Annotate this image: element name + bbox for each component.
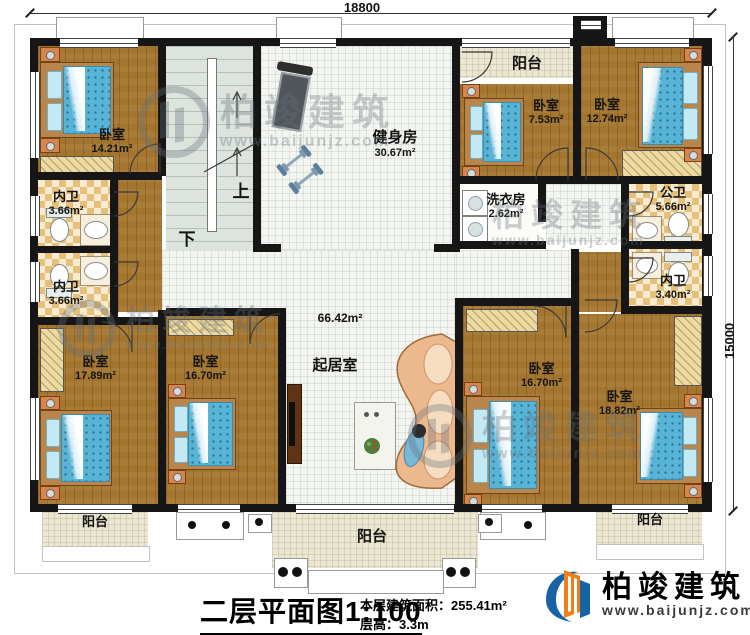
room-label-bedroom-tm: 卧室 7.53m² <box>511 99 581 126</box>
room-name: 公卫 <box>660 185 686 200</box>
nightstand <box>168 384 186 398</box>
height-value: 3.3m <box>399 617 429 632</box>
floor-plan-page: 18800 15000 <box>0 0 750 635</box>
tv <box>289 402 295 446</box>
window <box>30 72 40 158</box>
window <box>280 38 336 48</box>
room-area: 16.70m² <box>158 370 253 382</box>
room-label-bedroom-br1: 卧室 16.70m² <box>494 362 589 389</box>
brand-name: 柏竣建筑 <box>602 573 750 603</box>
sliding-door <box>296 504 454 514</box>
window-eave <box>612 17 694 40</box>
balcony-step <box>596 544 704 560</box>
column <box>292 567 302 577</box>
wall <box>166 308 286 316</box>
room-name: 阳台 <box>637 512 663 527</box>
bed <box>466 396 540 494</box>
room-area: 30.67m² <box>345 147 445 159</box>
table-item <box>374 412 379 417</box>
room-area: 16.70m² <box>494 377 589 389</box>
washing-machine <box>462 216 488 242</box>
stairs-up-label: 上 <box>228 182 254 201</box>
room-label-balcony-bc: 阳台 <box>343 529 401 546</box>
logo-window-slit <box>568 576 571 612</box>
toilet <box>664 252 692 262</box>
room-area: 12.74m² <box>572 113 642 125</box>
room-label-bath-r1: 公卫 5.66m² <box>642 186 704 213</box>
wall <box>253 244 281 252</box>
floor-hall-right <box>546 184 623 243</box>
window-eave <box>56 17 144 40</box>
wall <box>158 46 166 176</box>
wall <box>455 298 463 504</box>
sink <box>84 262 108 280</box>
room-area: 18.82m² <box>572 405 667 417</box>
floor-vestibule <box>118 180 162 312</box>
plan-area-line: 本层建筑面积：255.41m² <box>360 597 507 616</box>
stairs-up-text: 上 <box>233 182 250 201</box>
window <box>703 256 713 296</box>
floor-bedroom-br2-entry <box>579 252 623 312</box>
room-label-bath-r2: 内卫 3.40m² <box>642 274 704 301</box>
brand-website: www.baijunjz.com <box>602 603 750 618</box>
toilet-bowl <box>50 218 69 242</box>
room-area: 3.40m² <box>642 289 704 301</box>
room-name: 卧室 <box>533 98 559 113</box>
room-name: 洗衣房 <box>486 192 525 207</box>
closet <box>466 309 538 332</box>
room-area: 2.62m² <box>468 208 544 220</box>
room-name: 内卫 <box>53 189 79 204</box>
nightstand <box>40 138 60 153</box>
nightstand <box>684 394 702 408</box>
room-label-bedroom-tr: 卧室 12.74m² <box>572 98 642 125</box>
room-name: 内卫 <box>660 273 686 288</box>
dimension-top-value: 18800 <box>330 0 394 15</box>
wall <box>452 241 546 249</box>
window <box>703 66 713 154</box>
brand-logo: 柏竣建筑 www.baijunjz.com <box>540 566 750 626</box>
room-area: 66.42m² <box>318 311 363 325</box>
window-eave <box>276 17 342 40</box>
room-area: 17.89m² <box>48 370 143 382</box>
nightstand <box>40 396 60 410</box>
stair-rail <box>207 58 217 232</box>
wall <box>278 308 286 508</box>
wall <box>38 246 112 253</box>
logo-tower-blue <box>580 580 590 618</box>
bay-window <box>176 512 244 540</box>
nightstand <box>464 382 482 396</box>
wall <box>253 46 261 252</box>
room-label-bath-l2: 内卫 3.66m² <box>36 280 96 307</box>
window <box>615 38 689 48</box>
table-item <box>364 412 369 417</box>
room-label-bedroom-bm: 卧室 16.70m² <box>158 355 253 382</box>
logo-window-slit <box>574 578 577 614</box>
room-name: 阳台 <box>82 514 108 529</box>
nightstand <box>168 470 186 484</box>
room-name: 卧室 <box>82 354 108 369</box>
room-area: 7.53m² <box>511 114 581 126</box>
room-name: 健身房 <box>372 129 417 146</box>
room-label-balcony-top: 阳台 <box>499 56 555 73</box>
column <box>255 518 263 526</box>
stairs-down-text: 下 <box>179 230 196 249</box>
nightstand <box>684 48 702 62</box>
room-label-balcony-br: 阳台 <box>621 513 679 528</box>
nightstand <box>40 486 60 500</box>
balcony-step <box>42 546 150 562</box>
room-label-bath-l1: 内卫 3.66m² <box>36 190 96 217</box>
logo-tower-orange <box>564 570 580 618</box>
window <box>579 20 601 30</box>
wall <box>158 310 166 508</box>
column <box>460 567 470 577</box>
nightstand <box>462 84 480 98</box>
closet <box>674 316 702 386</box>
room-area: 3.66m² <box>36 205 96 217</box>
column <box>278 567 288 577</box>
wall <box>30 172 162 180</box>
bed <box>168 398 236 470</box>
balcony-railing <box>462 38 570 48</box>
dimension-line-right <box>733 38 734 512</box>
wall <box>621 306 704 314</box>
wall <box>30 317 166 325</box>
bed <box>638 62 702 148</box>
window <box>58 504 132 514</box>
sink <box>636 257 658 274</box>
area-label: 本层建筑面积： <box>360 598 451 613</box>
room-name: 卧室 <box>528 361 554 376</box>
window <box>60 38 138 48</box>
room-name: 卧室 <box>594 97 620 112</box>
room-name: 内卫 <box>53 279 79 294</box>
plan-info: 本层建筑面积：255.41m² 层高：3.3m <box>360 597 507 635</box>
plan-title-text: 二层平面图 <box>200 596 345 627</box>
room-area: 5.66m² <box>642 201 704 213</box>
room-name: 阳台 <box>357 528 387 545</box>
room-name: 卧室 <box>192 354 218 369</box>
room-name: 起居室 <box>312 357 357 374</box>
stairs-down-label: 下 <box>174 230 200 249</box>
dimension-right-value: 15000 <box>722 305 738 377</box>
room-area: 14.21m² <box>62 143 162 155</box>
brand-logo-icon <box>540 566 594 626</box>
wall <box>452 176 705 184</box>
sink <box>636 222 658 239</box>
room-area: 3.66m² <box>36 295 96 307</box>
room-label-bedroom-tl: 卧室 14.21m² <box>62 128 162 155</box>
wall <box>455 298 579 306</box>
wall <box>434 244 460 252</box>
closet <box>168 319 234 336</box>
window <box>30 398 40 480</box>
toilet-bowl <box>668 212 689 237</box>
wall <box>452 46 460 252</box>
nightstand <box>684 484 702 498</box>
plan-height-line: 层高：3.3m <box>360 616 507 635</box>
room-label-bedroom-br2: 卧室 18.82m² <box>572 390 667 417</box>
room-label-gym: 健身房 30.67m² <box>345 130 445 159</box>
window <box>703 398 713 482</box>
wall <box>621 184 629 314</box>
column <box>222 521 230 529</box>
room-label-laundry: 洗衣房 2.62m² <box>468 193 544 220</box>
window <box>703 194 713 234</box>
room-name: 卧室 <box>606 389 632 404</box>
room-label-bedroom-bl: 卧室 17.89m² <box>48 355 143 382</box>
column <box>446 567 456 577</box>
room-name: 卧室 <box>99 127 125 142</box>
room-label-living: 起居室 <box>303 358 367 375</box>
wall <box>621 241 704 249</box>
nightstand <box>684 148 702 162</box>
column <box>524 521 532 529</box>
height-label: 层高： <box>360 617 399 632</box>
nightstand <box>40 47 60 62</box>
room-label-balcony-bl: 阳台 <box>66 515 124 530</box>
bed <box>40 410 112 486</box>
column <box>188 521 196 529</box>
area-value: 255.41m² <box>451 598 507 613</box>
sink <box>84 221 108 239</box>
bed <box>636 408 702 484</box>
room-name: 阳台 <box>512 55 542 72</box>
living-room-area: 66.42m² <box>300 312 380 325</box>
column <box>485 518 493 526</box>
